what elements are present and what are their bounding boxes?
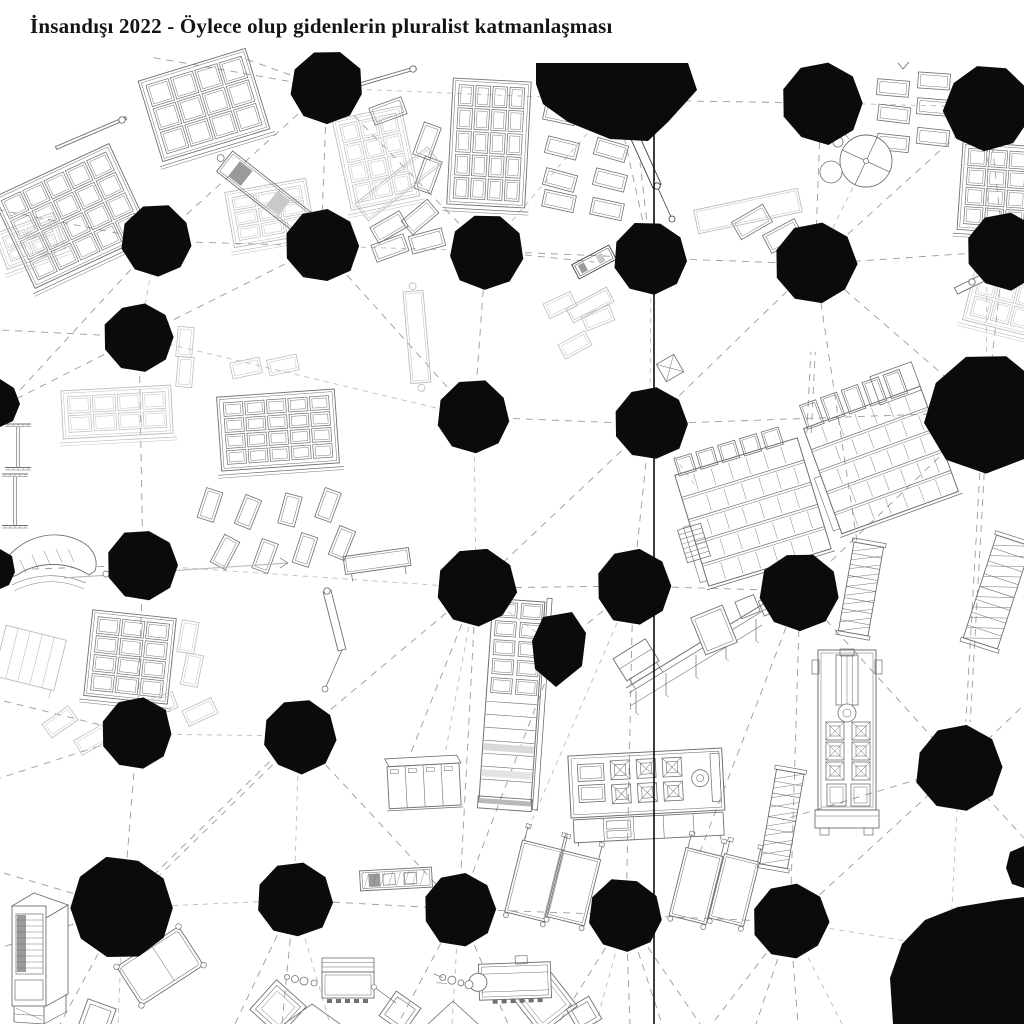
furniture-pallet: [408, 228, 446, 254]
network-node: [121, 205, 191, 276]
network-blob-b_top: [536, 63, 697, 141]
furniture-shelving-unit: [79, 609, 180, 711]
network-node: [760, 555, 839, 631]
furniture-pallet: [177, 620, 199, 654]
furniture-pallet: [278, 493, 302, 527]
furniture-pallet: [916, 127, 949, 146]
furniture-door-cabinet: [385, 755, 464, 811]
poster-page: İnsandışı 2022 - Öylece olup gidenlerin …: [0, 0, 1024, 1024]
furniture-pallet: [210, 534, 240, 569]
furniture-pallet: [267, 354, 300, 376]
furniture-rack: [960, 531, 1024, 654]
furniture-pallet: [292, 533, 318, 568]
furniture-pallet: [543, 291, 577, 318]
furniture-conveyor: [566, 287, 614, 323]
furniture-square-frame: [250, 980, 306, 1024]
network-node: [286, 209, 359, 281]
network-node: [105, 303, 174, 371]
furniture-pallet: [180, 653, 203, 688]
network-node: [425, 873, 496, 946]
furniture-ibeam: [2, 474, 28, 528]
furniture-pallet: [230, 357, 263, 379]
furniture-conveyor: [343, 547, 412, 582]
network-node: [598, 549, 671, 625]
furniture-roof-line: [284, 1004, 340, 1024]
artwork-canvas: [0, 0, 1024, 1024]
network-node: [783, 63, 862, 145]
furniture-machine: [433, 955, 552, 1006]
furniture-rod: [323, 590, 346, 651]
network-node: [589, 879, 662, 952]
network-node: [258, 863, 333, 937]
network-node: [108, 531, 178, 600]
furniture-square-frame: [78, 999, 116, 1024]
furniture-check-mark: [898, 62, 909, 69]
network-node: [438, 380, 509, 453]
artwork-svg: [0, 0, 1024, 1024]
furniture-side-table: [613, 639, 665, 691]
network-node: [615, 223, 687, 295]
furniture-pallet: [593, 137, 628, 162]
network-node: [70, 857, 173, 957]
network-blob-b_l1: [0, 379, 20, 427]
furniture-range: [812, 649, 882, 835]
network-node: [264, 700, 336, 774]
furniture-pallet: [371, 234, 409, 263]
network-node: [616, 387, 688, 459]
furniture-machine-box: [691, 605, 738, 655]
furniture-slat-table: [0, 625, 66, 699]
furniture-panel-door: [667, 831, 727, 930]
furniture-pallet: [413, 122, 442, 160]
furniture-pallet: [197, 488, 223, 523]
network-blob-b_r1: [1006, 846, 1024, 888]
furniture-pallet: [176, 326, 195, 357]
furniture-pallet: [542, 189, 577, 212]
furniture-box: [656, 354, 683, 381]
network-node: [103, 697, 172, 768]
furniture-pallet: [877, 104, 911, 124]
furniture-pallet: [252, 539, 279, 574]
furniture-conveyor: [694, 188, 803, 234]
furniture-rack: [757, 765, 807, 873]
furniture-rack: [836, 538, 887, 640]
furniture-ibeam: [5, 424, 31, 470]
network-node: [450, 216, 523, 290]
furniture-hatch-stack: [678, 523, 711, 563]
network-node: [754, 884, 829, 959]
network-blob-b_giant: [890, 897, 1024, 1024]
furniture-pallet: [42, 706, 78, 738]
network-nodes: [0, 52, 1024, 1024]
furniture-machine: [285, 958, 397, 1003]
furniture-pallet: [917, 72, 950, 90]
furniture-conveyor: [360, 867, 433, 891]
network-node: [924, 356, 1024, 473]
furniture-shelving-unit: [57, 385, 178, 446]
furniture-rod: [55, 117, 126, 150]
furniture-shelving-unit: [213, 389, 344, 479]
network-node: [291, 52, 362, 124]
furniture-pallet: [176, 356, 195, 387]
network-node: [776, 223, 857, 303]
furniture-kitchen-counter: [568, 748, 727, 847]
furniture-pallet: [558, 331, 592, 359]
furniture-pallet: [544, 136, 579, 160]
furniture-shelving-unit: [134, 47, 275, 169]
furniture-conveyor: [402, 282, 431, 392]
furniture-pallet: [592, 168, 627, 192]
furniture-tall-cabinet: [12, 893, 68, 1024]
furniture-shelving-unit: [442, 78, 535, 215]
furniture-pallet: [590, 197, 625, 220]
furniture-pallet: [876, 79, 909, 98]
furniture-pallet: [315, 488, 342, 523]
furniture-pallet: [182, 698, 218, 727]
furniture-rod: [358, 67, 417, 87]
furniture-pallet: [234, 494, 261, 529]
furniture-square-frame: [379, 991, 421, 1024]
network-node: [943, 66, 1024, 151]
furniture-pallet: [581, 305, 615, 331]
furniture-pallet: [401, 199, 439, 235]
